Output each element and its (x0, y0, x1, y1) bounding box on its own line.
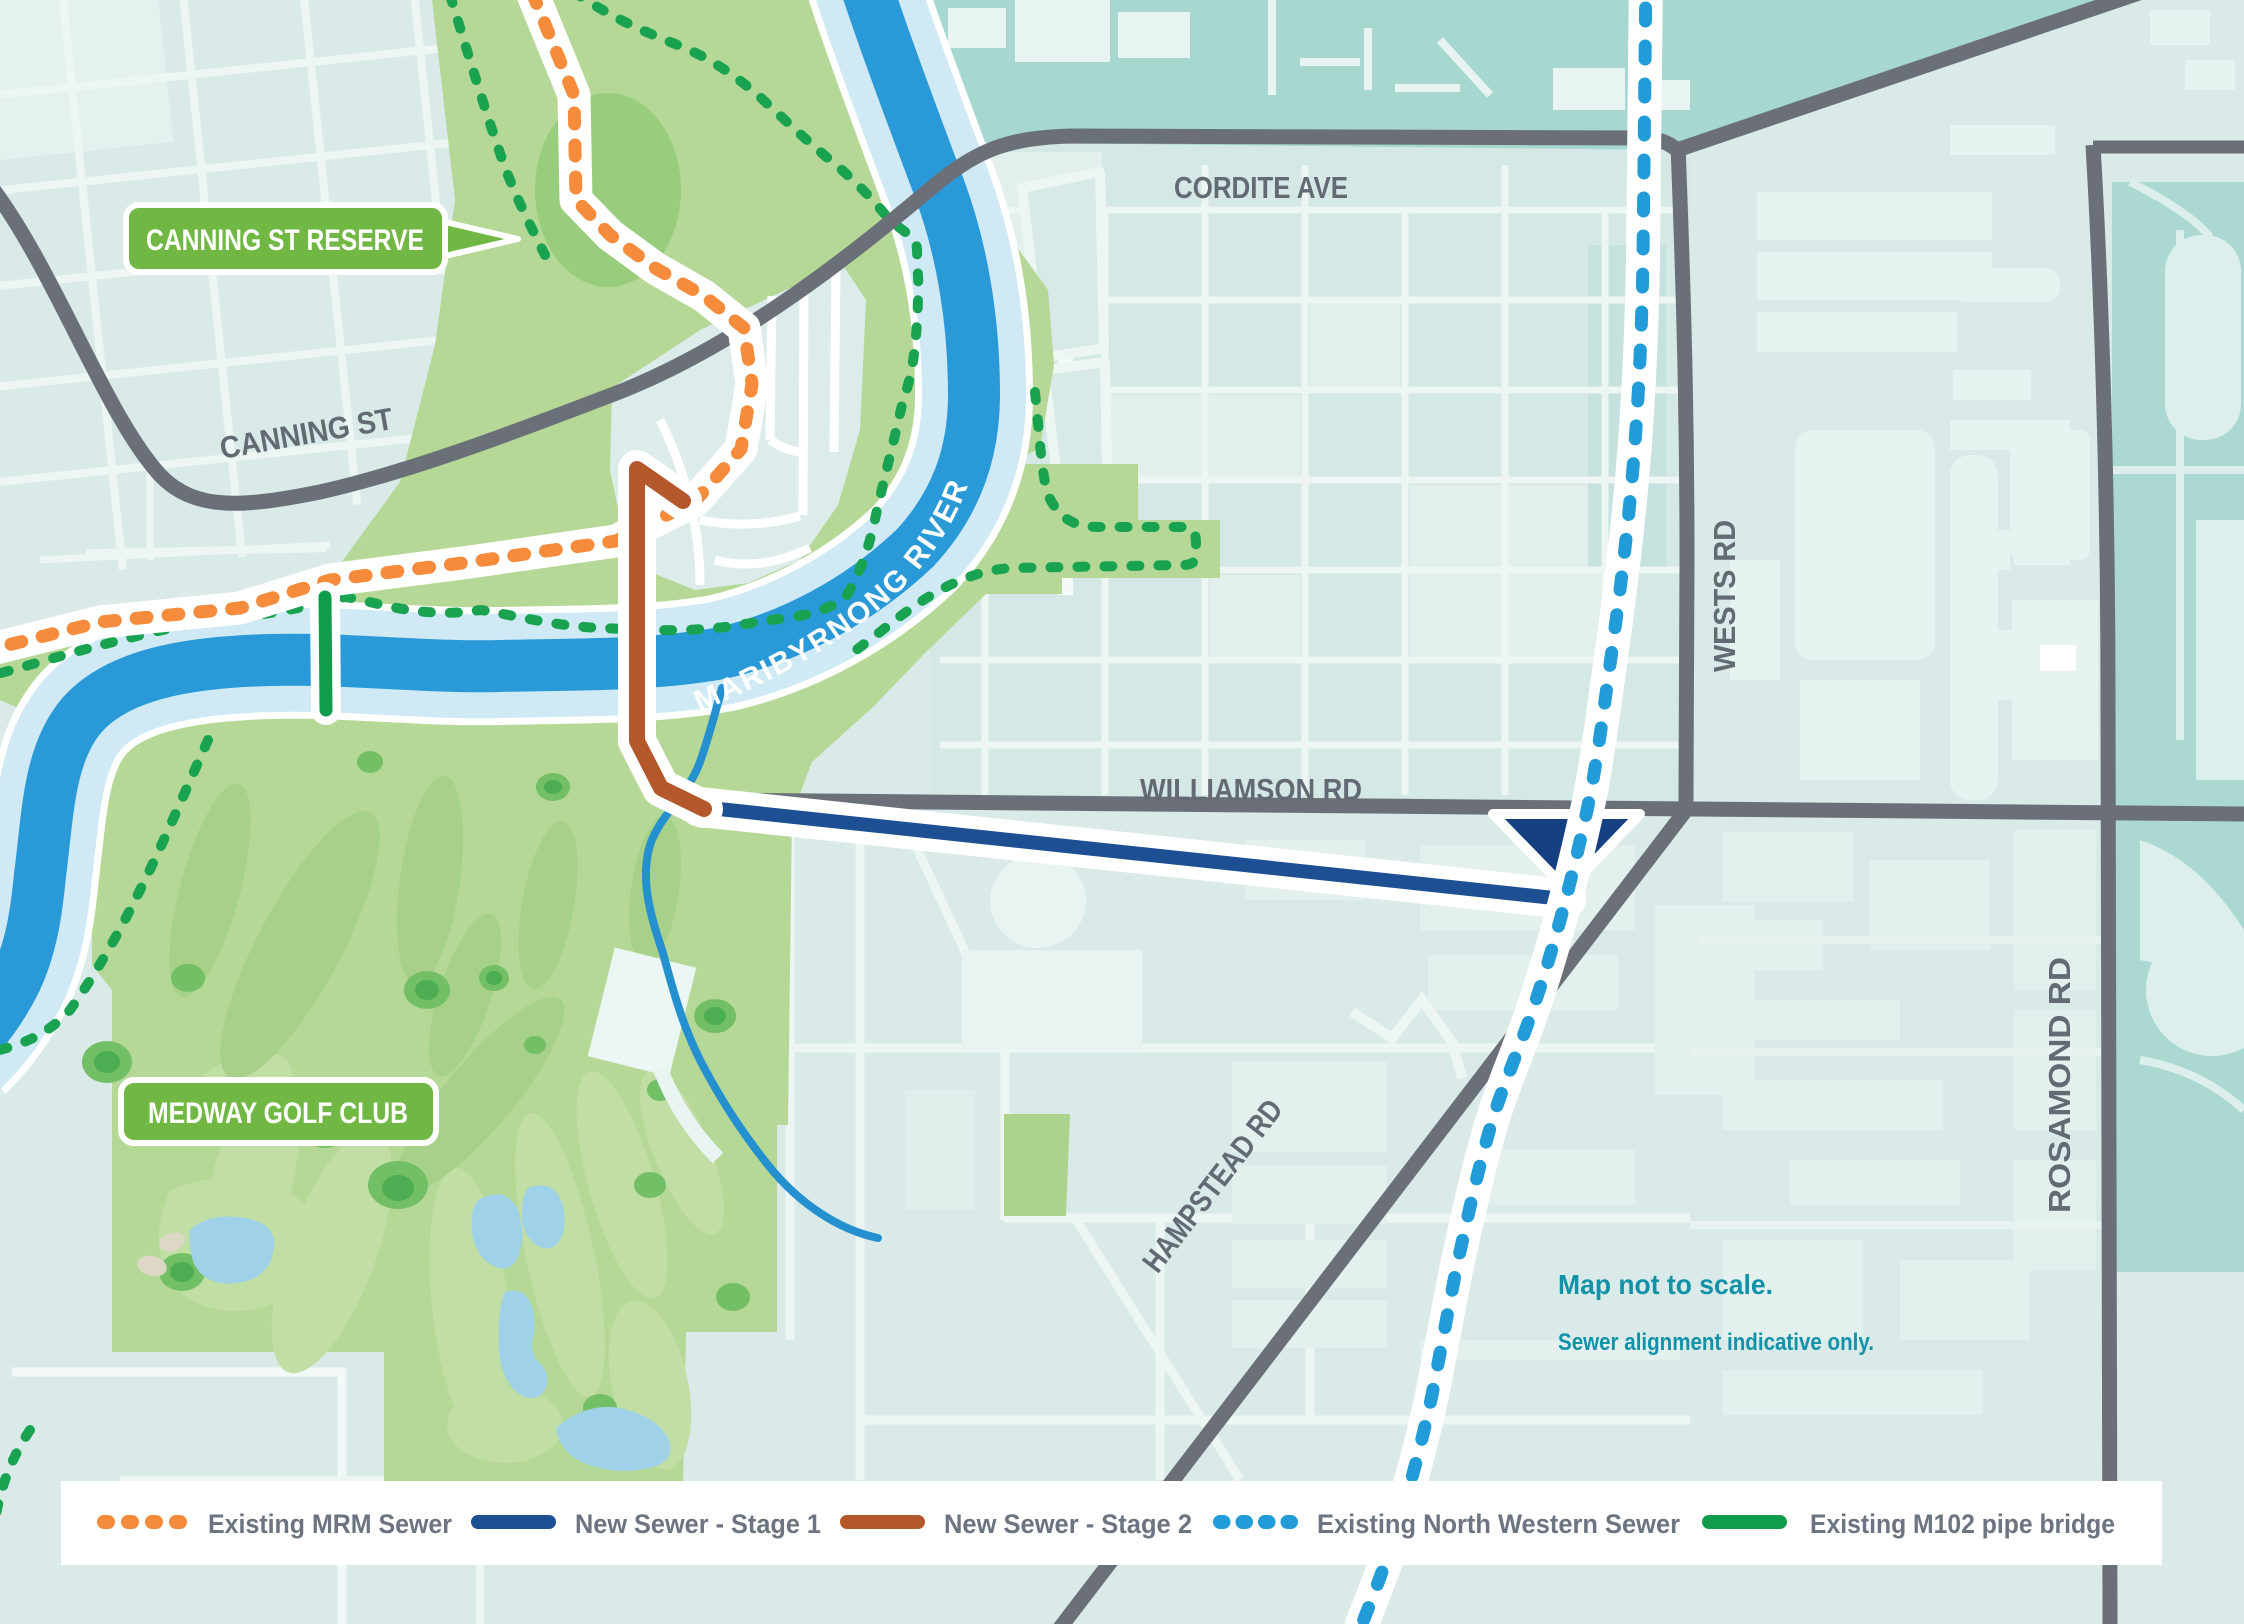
svg-text:WESTS RD: WESTS RD (1707, 520, 1742, 672)
svg-text:WILLIAMSON RD: WILLIAMSON RD (1140, 772, 1362, 807)
svg-text:Existing MRM Sewer: Existing MRM Sewer (208, 1509, 452, 1539)
svg-text:Existing M102 pipe bridge: Existing M102 pipe bridge (1810, 1509, 2115, 1539)
svg-text:ROSAMOND RD: ROSAMOND RD (2042, 957, 2077, 1213)
svg-text:New Sewer - Stage 2: New Sewer - Stage 2 (944, 1509, 1192, 1539)
svg-text:Sewer alignment indicative onl: Sewer alignment indicative only. (1558, 1329, 1874, 1356)
svg-text:New Sewer - Stage 1: New Sewer - Stage 1 (575, 1509, 821, 1539)
svg-text:CANNING ST RESERVE: CANNING ST RESERVE (146, 224, 424, 257)
svg-text:CORDITE AVE: CORDITE AVE (1174, 170, 1348, 205)
svg-text:MEDWAY GOLF CLUB: MEDWAY GOLF CLUB (148, 1097, 408, 1130)
svg-text:Existing North Western Sewer: Existing North Western Sewer (1317, 1509, 1680, 1539)
svg-text:Map not to scale.: Map not to scale. (1558, 1269, 1773, 1300)
